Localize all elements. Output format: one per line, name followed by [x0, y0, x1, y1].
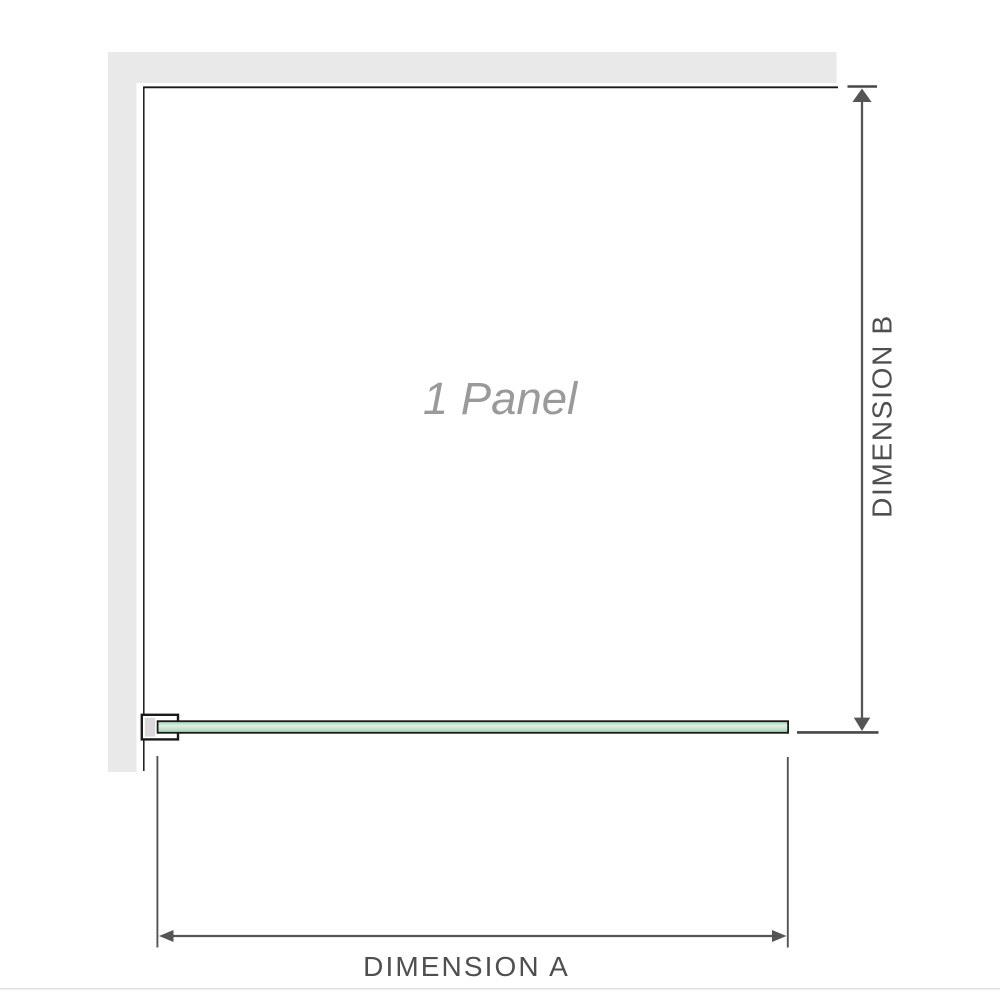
svg-text:1 Panel: 1 Panel — [423, 373, 579, 424]
svg-text:DIMENSION B: DIMENSION B — [867, 314, 898, 518]
svg-text:DIMENSION A: DIMENSION A — [363, 951, 570, 982]
